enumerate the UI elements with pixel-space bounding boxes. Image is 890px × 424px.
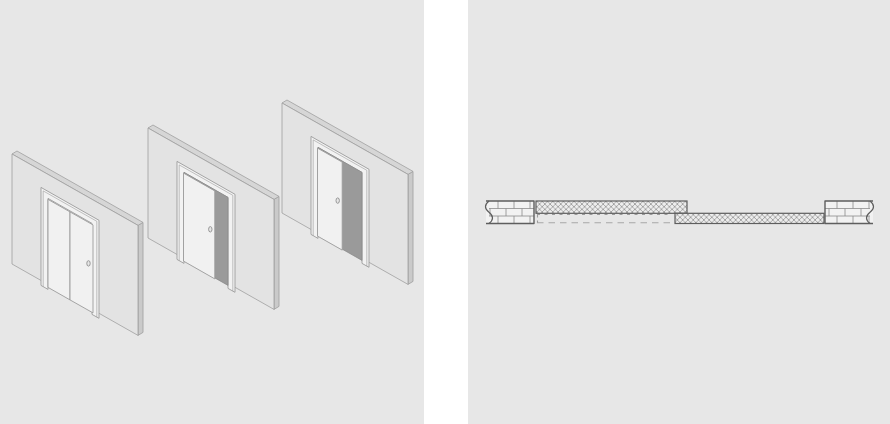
pocket-counterframe-section <box>536 201 687 213</box>
retracted-door-dashed-outline <box>537 215 670 223</box>
plan-view-panel <box>468 0 890 424</box>
wall-side-face <box>138 222 143 335</box>
pocket-cover-panel <box>48 199 70 300</box>
door-handle <box>209 227 212 232</box>
door-handle <box>336 198 339 203</box>
pocket-door-step-2 <box>148 125 279 309</box>
door-handle <box>87 261 90 266</box>
wall-side-face <box>408 171 413 284</box>
door-leaf <box>184 173 215 279</box>
wall-side-face <box>274 196 279 309</box>
plan-section-figure <box>468 0 890 424</box>
pocket-door-step-1 <box>12 151 143 335</box>
isometric-sequence-panel <box>0 0 424 424</box>
masonry-wall-section-right <box>825 201 874 224</box>
pocket-door-illustration-pair <box>0 0 890 424</box>
door-panel-section <box>675 213 824 223</box>
masonry-wall-section-left <box>486 201 535 224</box>
pocket-door-step-3 <box>282 100 413 284</box>
isometric-sequence-figure <box>0 0 424 424</box>
